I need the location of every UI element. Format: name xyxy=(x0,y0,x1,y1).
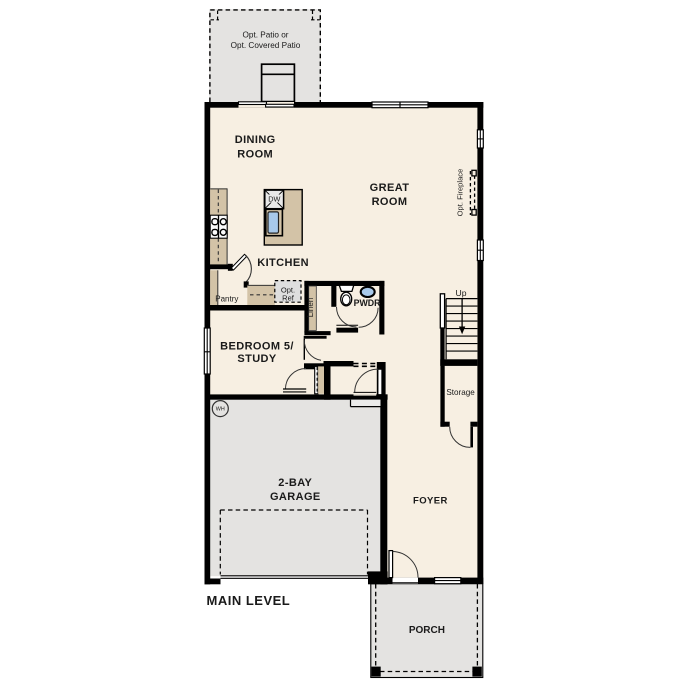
svg-text:BEDROOM 5/: BEDROOM 5/ xyxy=(220,341,294,353)
svg-text:Up: Up xyxy=(456,288,467,298)
svg-text:Storage: Storage xyxy=(446,388,475,397)
svg-text:STUDY: STUDY xyxy=(237,353,277,365)
svg-text:Opt. Patio or: Opt. Patio or xyxy=(243,31,289,40)
svg-text:WH: WH xyxy=(216,407,225,413)
svg-text:ROOM: ROOM xyxy=(237,148,273,160)
svg-text:DINING: DINING xyxy=(235,134,276,146)
svg-text:ROOM: ROOM xyxy=(372,196,408,208)
svg-text:GREAT: GREAT xyxy=(370,182,410,194)
svg-text:Opt. Covered Patio: Opt. Covered Patio xyxy=(231,41,301,50)
svg-text:Linen: Linen xyxy=(306,298,315,318)
svg-text:Pantry: Pantry xyxy=(215,295,238,304)
svg-text:Opt. Fireplace: Opt. Fireplace xyxy=(456,169,465,217)
svg-text:PWDR: PWDR xyxy=(354,298,382,308)
svg-text:MAIN LEVEL: MAIN LEVEL xyxy=(207,593,291,608)
svg-text:DW: DW xyxy=(268,194,280,203)
svg-text:KITCHEN: KITCHEN xyxy=(257,257,309,269)
svg-text:2-BAY: 2-BAY xyxy=(278,477,312,489)
svg-text:Ref: Ref xyxy=(282,294,295,303)
svg-text:GARAGE: GARAGE xyxy=(270,491,321,503)
svg-text:PORCH: PORCH xyxy=(409,625,445,636)
svg-text:FOYER: FOYER xyxy=(413,495,448,506)
